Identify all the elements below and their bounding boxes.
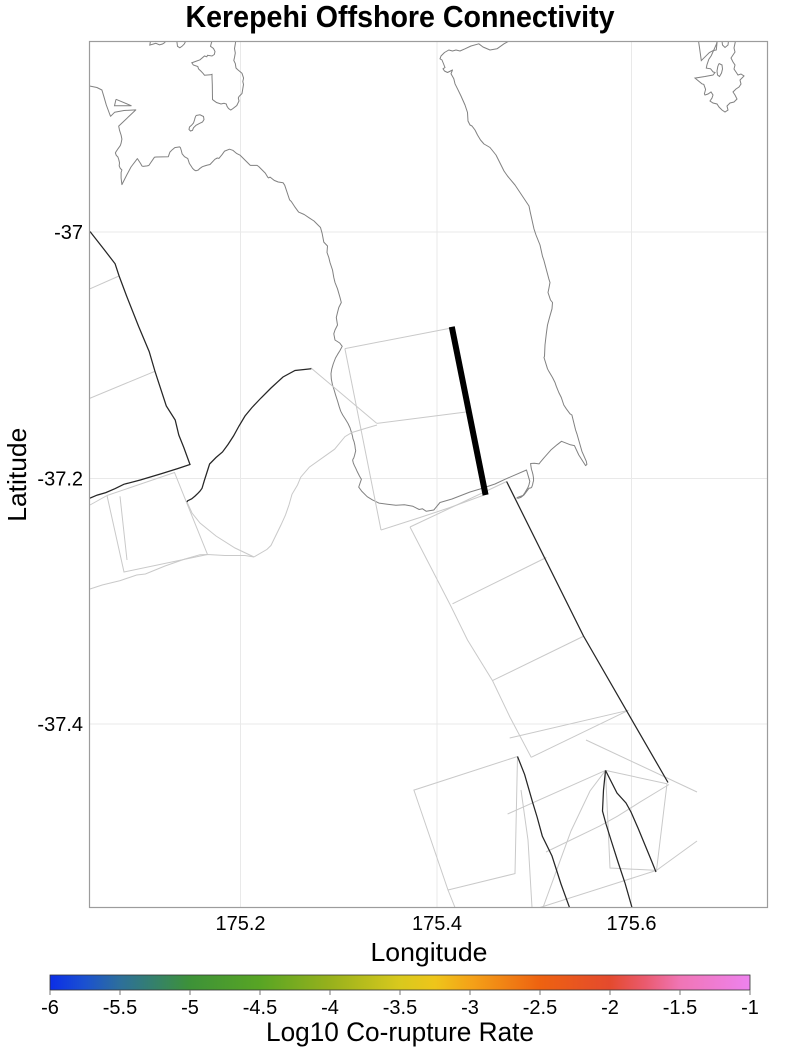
svg-text:Kerepehi Offshore Connectivity: Kerepehi Offshore Connectivity	[186, 0, 616, 34]
svg-text:175.2: 175.2	[215, 913, 265, 935]
svg-text:-1: -1	[741, 997, 759, 1019]
svg-text:-3.5: -3.5	[383, 997, 417, 1019]
svg-text:-2.5: -2.5	[523, 997, 557, 1019]
svg-text:-4: -4	[321, 997, 339, 1019]
svg-text:-5: -5	[181, 997, 199, 1019]
svg-text:-1.5: -1.5	[663, 997, 697, 1019]
svg-text:-4.5: -4.5	[243, 997, 277, 1019]
svg-text:Longitude: Longitude	[371, 937, 488, 967]
svg-text:Latitude: Latitude	[2, 428, 32, 522]
svg-text:Log10 Co-rupture Rate: Log10 Co-rupture Rate	[266, 1017, 534, 1047]
svg-text:-37: -37	[54, 222, 83, 244]
svg-text:-3: -3	[461, 997, 479, 1019]
svg-text:175.6: 175.6	[606, 913, 656, 935]
svg-text:175.4: 175.4	[412, 913, 462, 935]
svg-text:-6: -6	[41, 997, 59, 1019]
svg-text:-37.2: -37.2	[37, 469, 83, 491]
svg-text:-2: -2	[601, 997, 619, 1019]
svg-text:-5.5: -5.5	[103, 997, 137, 1019]
svg-text:-37.4: -37.4	[37, 714, 83, 736]
